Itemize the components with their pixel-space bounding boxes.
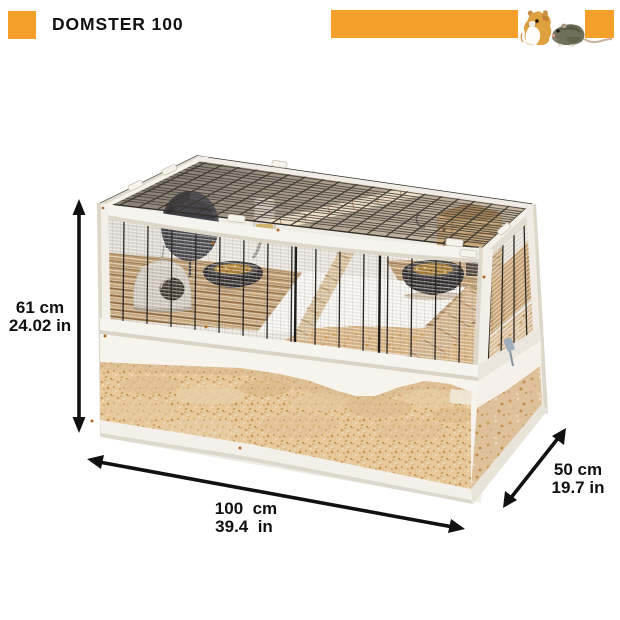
svg-text:39.4 in: 39.4 in	[215, 517, 273, 536]
svg-text:61 cm: 61 cm	[16, 298, 64, 317]
svg-text:DOMSTER 100: DOMSTER 100	[52, 14, 183, 34]
svg-text:50 cm: 50 cm	[554, 460, 602, 479]
svg-text:100 cm: 100 cm	[215, 499, 277, 518]
svg-text:19.7 in: 19.7 in	[552, 478, 605, 497]
svg-text:24.02 in: 24.02 in	[9, 316, 71, 335]
